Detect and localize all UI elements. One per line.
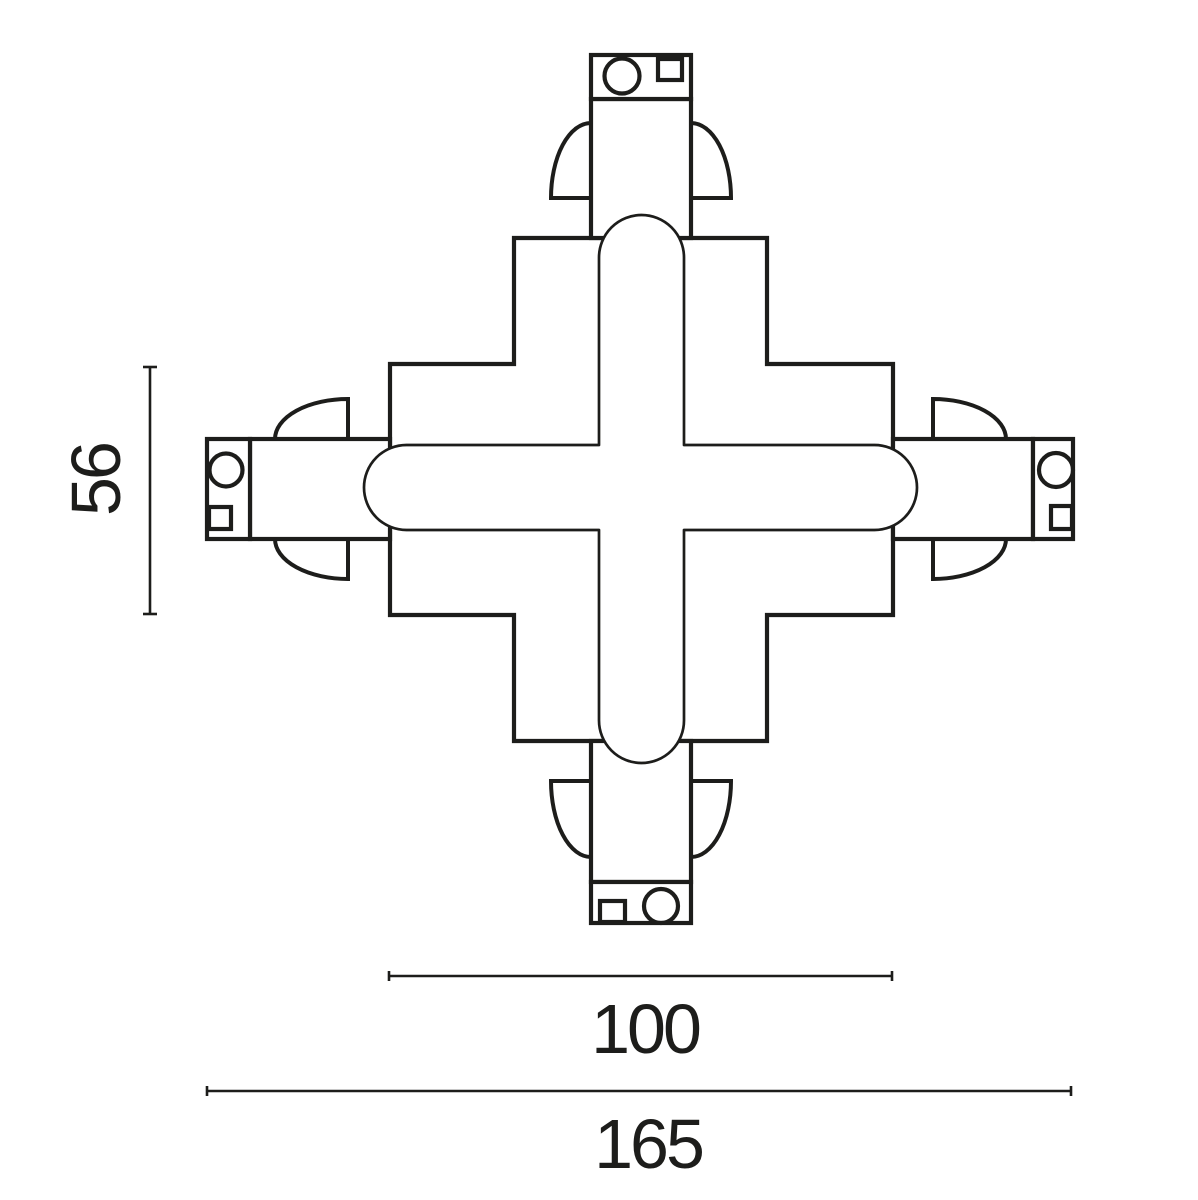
left-connector-top-wing bbox=[275, 399, 348, 439]
dimension-label-165: 165 bbox=[594, 1109, 702, 1179]
bottom-connector bbox=[591, 741, 691, 923]
dimension-165 bbox=[207, 1086, 1071, 1096]
drawing-root bbox=[143, 55, 1073, 1096]
right-connector-top-wing bbox=[933, 399, 1006, 439]
right-connector bbox=[893, 439, 1073, 539]
bottom-connector-right-wing bbox=[691, 781, 731, 857]
top-connector bbox=[591, 55, 691, 238]
dimension-100 bbox=[389, 971, 892, 981]
left-connector-bottom-wing bbox=[275, 539, 348, 579]
dimension-label-56: 56 bbox=[61, 444, 131, 516]
top-connector-right-wing bbox=[691, 123, 731, 198]
track-channel-slot bbox=[364, 215, 917, 763]
bottom-connector-left-wing bbox=[551, 781, 591, 857]
technical-drawing-canvas: 56 100 165 bbox=[0, 0, 1198, 1200]
right-connector-bottom-wing bbox=[933, 539, 1006, 579]
dimension-56 bbox=[143, 367, 157, 614]
left-connector bbox=[207, 439, 390, 539]
top-connector-left-wing bbox=[551, 123, 591, 198]
dimension-label-100: 100 bbox=[591, 994, 699, 1064]
